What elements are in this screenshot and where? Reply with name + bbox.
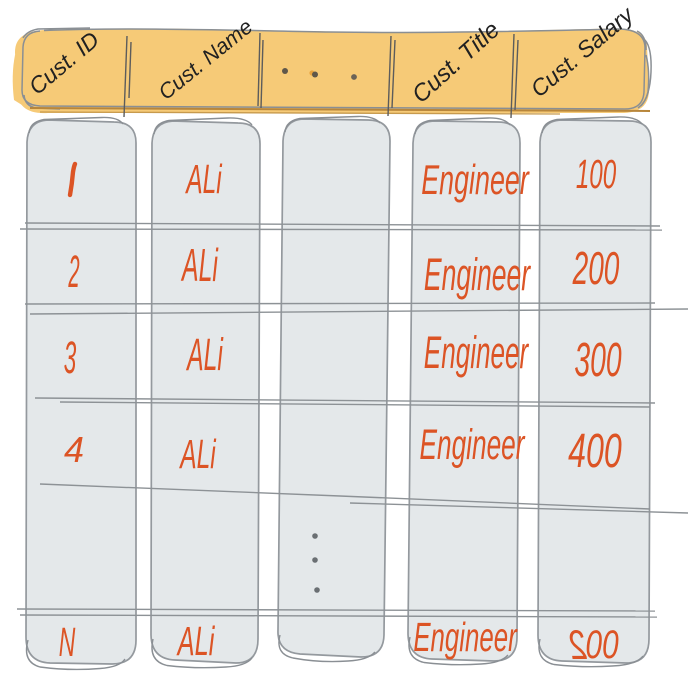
svg-text:2: 2 (68, 247, 80, 297)
svg-text:ALi: ALi (186, 329, 224, 380)
svg-text:200: 200 (572, 244, 620, 295)
svg-text:ALi: ALi (185, 157, 223, 203)
svg-text:Engineer: Engineer (421, 157, 530, 203)
svg-text:ALi: ALi (179, 432, 217, 478)
svg-text:4: 4 (64, 429, 84, 470)
svg-text:Engineer: Engineer (420, 420, 527, 468)
svg-text:100: 100 (576, 153, 617, 198)
svg-text:00: 00 (585, 623, 619, 667)
svg-text:400: 400 (568, 424, 622, 478)
svg-text:3: 3 (64, 333, 77, 384)
svg-text:ALi: ALi (181, 240, 219, 291)
svg-text:ALi: ALi (176, 619, 215, 665)
svg-text:N: N (59, 620, 76, 666)
svg-text:Engineer: Engineer (424, 250, 531, 300)
svg-text:Engineer: Engineer (424, 328, 530, 378)
svg-text:Engineer: Engineer (413, 615, 518, 660)
svg-text:300: 300 (574, 333, 621, 387)
